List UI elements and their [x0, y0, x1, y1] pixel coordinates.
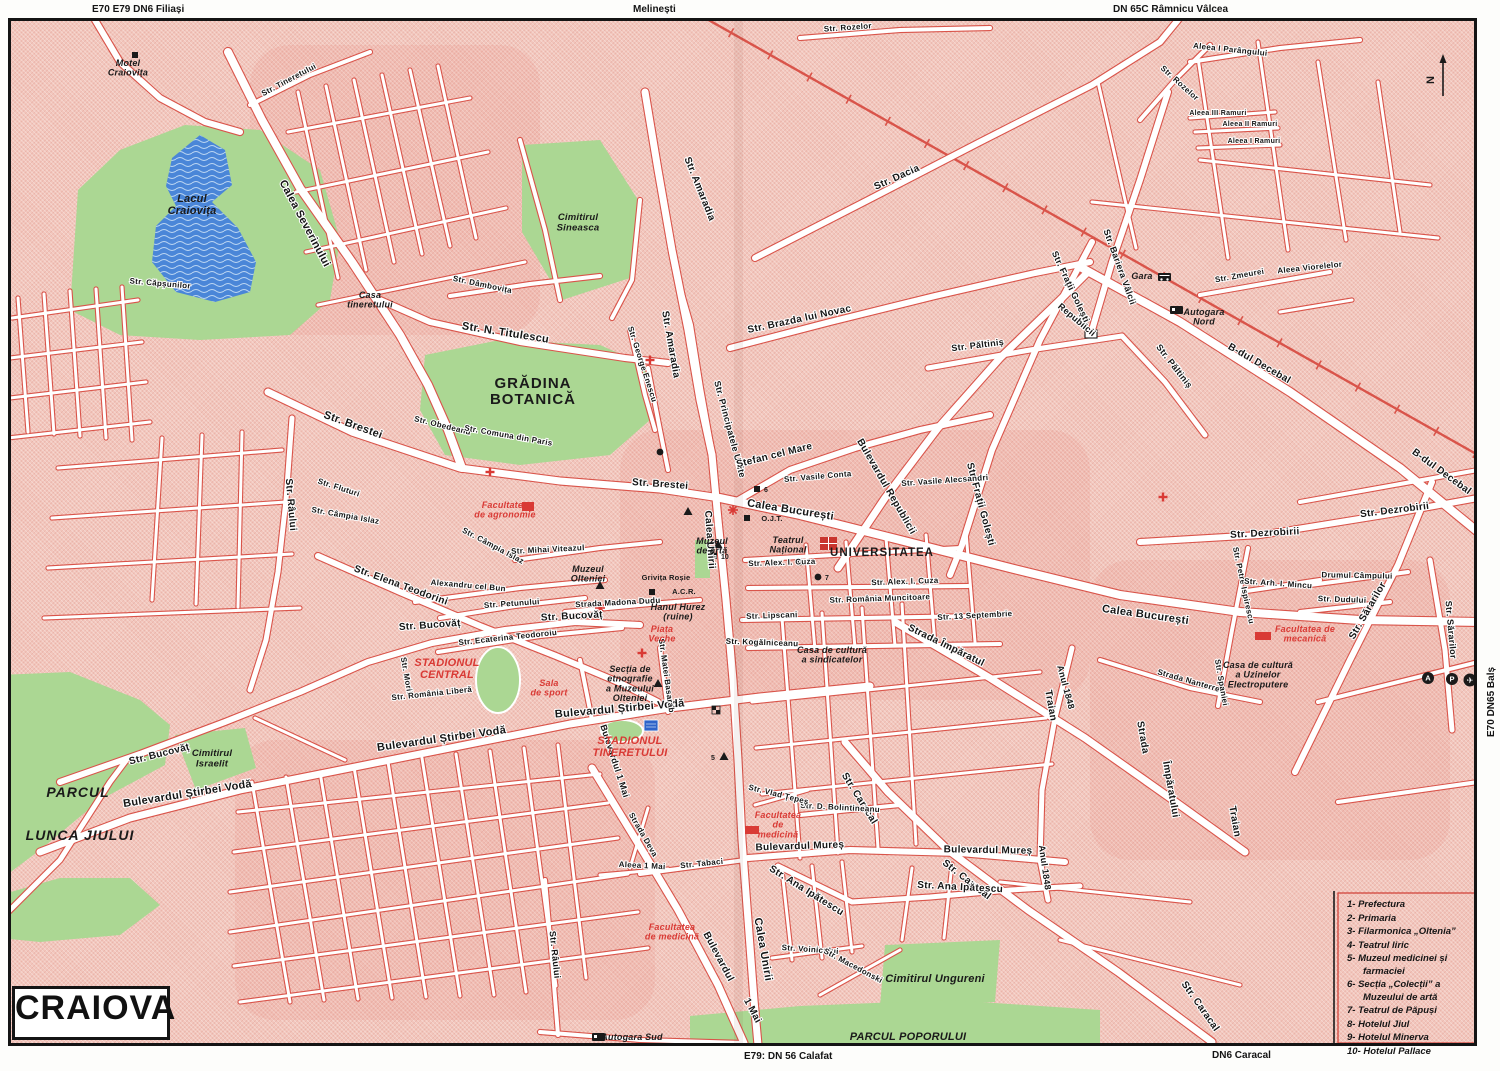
landmark-building	[1255, 632, 1271, 640]
street-label: B-dul Decebal	[1226, 341, 1293, 386]
place-label-line: a Uzinelor	[1235, 670, 1280, 680]
street-label: Aleea II Ramuri	[1222, 121, 1277, 128]
place-label: STADIONULTINERETULUI	[593, 735, 669, 759]
poi-square-icon	[649, 589, 655, 595]
place-label-line: Facultatea de	[1275, 624, 1335, 634]
place-label-line: PARCUL	[46, 784, 109, 800]
road	[1280, 300, 1352, 312]
place-label-line: Facultatea	[482, 500, 529, 510]
checker-icon	[716, 710, 720, 714]
legend-item: 6- Secția „Colecții” a Muzeului de artă	[1347, 979, 1477, 1004]
road	[748, 586, 968, 588]
place-label: STADIONULCENTRAL	[414, 657, 479, 681]
place-label: Casa de culturăa sindicatelor	[797, 645, 867, 665]
road-casing	[1082, 268, 1474, 532]
place-label-line: Olteniei	[613, 693, 648, 703]
road	[52, 502, 286, 518]
place-label: Autogara Sud	[600, 1032, 663, 1042]
road	[1082, 268, 1474, 532]
road	[58, 450, 282, 468]
street-label: Str. Amaradia	[681, 155, 717, 222]
place-label-line: Electroputere	[1228, 679, 1289, 689]
street-label: Aleea I Ramuri	[1228, 138, 1281, 145]
place-label-line: Veche	[648, 634, 675, 644]
poi-number: 5	[711, 755, 715, 762]
street-label: Str. Dezrobirii	[1230, 526, 1300, 541]
north-arrow-icon	[1440, 54, 1447, 63]
street-label: Str. Bucovăț	[399, 618, 462, 633]
place-label-line: Sala	[539, 678, 558, 688]
place-label-line: Facultatea	[755, 810, 802, 820]
place-label-line: O.J.T.	[761, 514, 782, 523]
street-label: Drumul Câmpului	[1321, 570, 1392, 580]
bus-station-icon	[1172, 308, 1175, 311]
place-label-line: Piața	[651, 624, 674, 634]
road	[1318, 62, 1346, 240]
airport-icon: ✈	[1467, 676, 1474, 685]
circle-letter-icon: A	[1425, 674, 1431, 683]
poi-dot-icon	[657, 449, 664, 456]
place-label: GRĂDINABOTANICĂ	[490, 375, 576, 408]
place-label-line: Gara	[1131, 271, 1152, 281]
road	[730, 262, 1090, 348]
map-page: E70 E79 DN6 Filiași Melinești DN 65C Râm…	[0, 0, 1500, 1071]
place-label: Facultateade medicină	[645, 922, 699, 942]
checker-icon	[712, 706, 716, 710]
street-label: Bulevardul Mureș	[944, 844, 1033, 857]
street-label: Str. Lipscani	[746, 610, 798, 621]
place-label-line: Motel	[116, 58, 141, 68]
legend-item: 3- Filarmonica „Oltenia”	[1347, 926, 1477, 939]
road	[756, 718, 1046, 748]
place-label-line: Craiovița	[108, 68, 148, 78]
train-station-icon	[1158, 273, 1171, 281]
place-label-line: STADIONUL	[414, 657, 479, 669]
place-label-line: TINERETULUI	[593, 747, 669, 759]
bus-station-icon	[1170, 306, 1183, 314]
place-label-line: Secția de	[609, 664, 650, 674]
road	[1378, 82, 1400, 232]
place-label: Salade sport	[530, 678, 568, 698]
poi-number: 7	[825, 575, 829, 582]
street-label: Alexandru cel Bun	[430, 578, 506, 594]
map-frame: 10675AP✈Calea SeverinuluiStr. Tineretulu…	[8, 18, 1477, 1046]
street-label: Str. România Liberă	[391, 685, 473, 702]
park-area	[11, 672, 170, 880]
road	[44, 608, 300, 618]
place-label: LUNCA JIULUI	[26, 827, 135, 843]
place-label: Cimitirul Ungureni	[885, 973, 985, 985]
place-label-line: de medicină	[645, 932, 699, 942]
north-label: N	[1425, 76, 1437, 84]
district-tint	[1090, 560, 1450, 860]
street-label: Str. Morii	[399, 656, 414, 694]
street-label: Str. Dudului	[1318, 594, 1367, 605]
street-label: Aleea III Ramuri	[1189, 110, 1246, 117]
place-label: Grivița Roșie	[642, 573, 691, 582]
place-label-line: Muzeul	[696, 536, 728, 546]
legend-item: 2- Primaria	[1347, 913, 1477, 926]
place-label-line: GRĂDINA	[495, 375, 572, 392]
place-label-line: Hanul Hurez	[651, 602, 706, 612]
poi-number: 6	[764, 487, 768, 494]
place-label: PARCUL	[46, 784, 109, 800]
legend-item: 7- Teatrul de Păpuși	[1347, 1005, 1477, 1018]
place-label-line: Casa de cultură	[797, 645, 867, 655]
place-label-line: Sineasca	[557, 222, 600, 233]
place-label: MuzeulOlteniei	[571, 564, 606, 584]
map-title: CRAIOVA	[12, 986, 170, 1040]
stadium-field	[476, 647, 520, 713]
road	[1060, 940, 1240, 985]
edge-label-top-center: Melinești	[633, 4, 676, 15]
fold-line	[734, 21, 743, 1043]
street-label: Str. Amaradia	[659, 310, 682, 379]
road	[902, 868, 912, 940]
place-label-line: a Muzeului	[606, 683, 654, 693]
place-label: Secția deetnografiea MuzeuluiOlteniei	[606, 664, 654, 703]
legend-item: 4- Teatrul liric	[1347, 940, 1477, 953]
place-label-line: Național	[769, 545, 806, 555]
place-label-line: mecanică	[1284, 634, 1327, 644]
place-label: Facultatea demecanică	[1275, 624, 1335, 644]
place-label-line: Israelit	[196, 758, 229, 769]
legend-item: 1- Prefectura	[1347, 899, 1477, 912]
street-label: Str. Zmeurei	[1214, 267, 1265, 285]
place-label: Muzeulde artă	[696, 536, 728, 556]
place-label-line: Autogara Sud	[600, 1032, 663, 1042]
place-label-line: CENTRAL	[420, 669, 474, 681]
place-label-line: STADIONUL	[597, 735, 662, 747]
city-map-svg: 10675AP✈Calea SeverinuluiStr. Tineretulu…	[11, 21, 1474, 1043]
street-label: Str. Câmpia Islaz	[311, 505, 380, 526]
street-label: Str. Petunului	[484, 597, 540, 610]
poi-square-icon	[754, 486, 760, 492]
street-label: Str. Păltiniș	[1154, 342, 1194, 390]
place-label-line: Casa	[359, 290, 381, 300]
road	[1092, 202, 1438, 238]
place-label-line: PARCUL POPORULUI	[850, 1031, 967, 1043]
legend-item: 5- Muzeul medicinei și farmaciei	[1347, 953, 1477, 978]
circle-letter-icon: P	[1449, 675, 1454, 684]
place-label-line: BOTANICĂ	[490, 391, 576, 408]
legend-item: 8- Hotelul Jiul	[1347, 1019, 1477, 1032]
place-label-line: Casa de cultură	[1223, 660, 1293, 670]
place-label: MotelCraiovița	[108, 58, 148, 78]
edge-label-top-right: DN 65C Râmnicu Vâlcea	[1113, 4, 1228, 15]
bus-station-icon	[594, 1035, 597, 1038]
road	[48, 554, 292, 568]
place-label-line: UNIVERSITATEA	[830, 547, 934, 559]
place-label: A.C.R.	[672, 587, 696, 596]
place-label-line: (ruine)	[663, 612, 692, 622]
edge-label-top-left: E70 E79 DN6 Filiași	[92, 4, 184, 15]
place-label: UNIVERSITATEA	[830, 547, 934, 559]
place-label-line: Nord	[1193, 317, 1215, 327]
poi-square-icon	[744, 515, 750, 521]
place-label-line: Craiovița	[168, 205, 217, 217]
place-label-line: A.C.R.	[672, 587, 696, 596]
place-label-line: Facultatea	[649, 922, 696, 932]
place-label-line: tineretului	[347, 300, 393, 310]
place-label: O.J.T.	[761, 514, 782, 523]
road	[755, 21, 1178, 258]
place-label-line: de artă	[697, 546, 728, 556]
road	[944, 864, 952, 938]
poi-dot-icon	[815, 574, 822, 581]
place-label-line: Olteniei	[571, 574, 606, 584]
place-label-line: de sport	[530, 688, 568, 698]
place-label: Facultateademedicină	[755, 810, 802, 839]
legend-item: 10- Hotelul Pallace	[1347, 1046, 1477, 1059]
place-label-line: a sindicatelor	[802, 655, 863, 665]
train-station-icon	[1166, 278, 1168, 280]
edge-label-right-vertical: E70 DN65 Balș	[1486, 667, 1497, 737]
road	[238, 432, 242, 607]
place-label: Gara	[1131, 271, 1152, 281]
place-label-line: Lacul	[177, 193, 207, 205]
place-label-line: medicină	[758, 829, 799, 839]
place-label: PiațaVeche	[648, 624, 675, 644]
place-label-line: Grivița Roșie	[642, 573, 691, 582]
place-label-line: etnografie	[607, 674, 653, 684]
edge-label-bottom-center: E79: DN 56 Calafat	[744, 1051, 832, 1062]
place-label-line: de	[773, 820, 784, 830]
road	[812, 866, 822, 958]
train-station-icon	[1160, 278, 1162, 280]
road	[1098, 82, 1136, 248]
place-label: CimitirulIsraelit	[192, 748, 232, 769]
place-label-line: LUNCA JIULUI	[26, 827, 135, 843]
legend-item: 9- Hotelul Minerva	[1347, 1032, 1477, 1045]
place-label: TeatrulNațional	[769, 535, 806, 555]
pool-icon	[644, 720, 658, 731]
place-label-line: de agronomie	[474, 510, 535, 520]
street-label: Str. Fluturi	[317, 477, 361, 499]
place-label-line: Teatrul	[772, 535, 803, 545]
legend: 1- Prefectura2- Primaria3- Filarmonica „…	[1347, 899, 1477, 1059]
place-label-line: Muzeul	[572, 564, 604, 574]
road	[1200, 160, 1430, 185]
museum-triangle-icon	[720, 752, 729, 760]
place-label-line: Cimitirul Ungureni	[885, 973, 985, 985]
street-label: Str. Păltiniș	[951, 337, 1005, 353]
edge-label-bottom-right: DN6 Caracal	[1212, 1050, 1271, 1061]
place-label: PARCUL POPORULUI	[850, 1031, 967, 1043]
place-label: Facultateade agronomie	[474, 500, 535, 520]
place-label: CimitirulSineasca	[557, 212, 600, 233]
place-label-line: Autogara	[1182, 307, 1224, 317]
